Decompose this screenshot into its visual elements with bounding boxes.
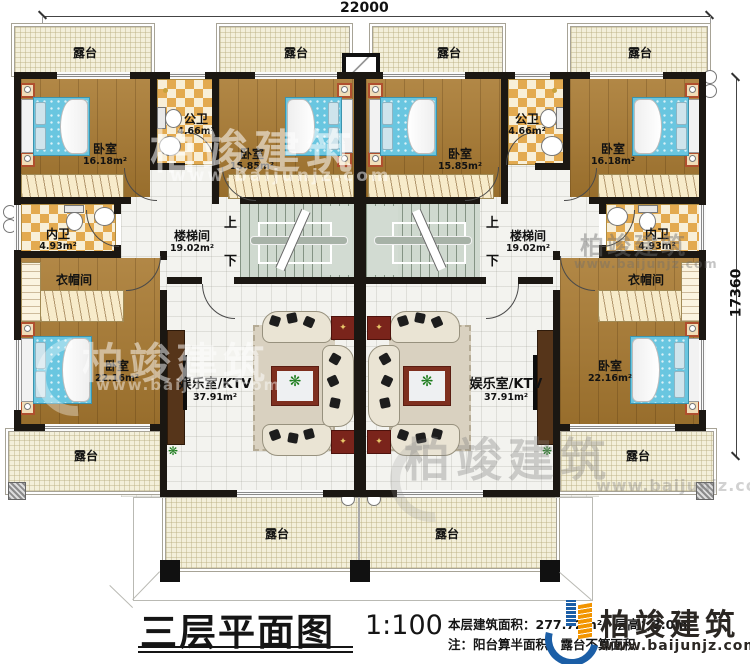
side-table: ✦ <box>367 430 391 454</box>
corner-post <box>696 482 714 500</box>
wall-lamp <box>552 88 557 93</box>
wardrobe <box>40 290 124 322</box>
wall <box>550 72 590 79</box>
wall <box>553 251 560 260</box>
star-icon: ✦ <box>375 437 383 447</box>
roof-line <box>109 585 133 608</box>
wall <box>167 277 202 284</box>
pillow <box>676 127 687 150</box>
pillow <box>674 342 685 369</box>
plant-icon: ❋ <box>542 444 552 458</box>
column <box>160 560 180 582</box>
table-glass: ❋ <box>409 371 445 401</box>
coffee-table: ❋ <box>271 366 319 406</box>
stair-up-label: 上 <box>224 212 237 231</box>
wall <box>563 79 570 170</box>
window <box>237 490 323 497</box>
wardrobe <box>598 290 682 322</box>
stair-down-label: 下 <box>486 250 499 269</box>
site-url: www.baijunjz.com <box>600 638 750 654</box>
closet <box>681 262 701 322</box>
wall <box>589 197 706 204</box>
wall <box>14 72 21 205</box>
cushion <box>379 397 391 409</box>
room-label: 卧室22.16m² <box>588 360 632 385</box>
scale-label: 1:100 <box>365 610 443 641</box>
title-underline <box>138 646 353 648</box>
pillow <box>35 102 46 125</box>
window <box>699 340 706 410</box>
room-label: 露台 <box>628 47 652 61</box>
window <box>699 205 706 250</box>
pillow <box>674 371 685 398</box>
wall <box>205 72 255 79</box>
room-label: 露台 <box>265 528 289 542</box>
floor-plan-sheet: 22000 17360 上 下 上 下 <box>0 0 750 664</box>
wardrobe <box>21 174 124 199</box>
room-label: 内卫4.93m² <box>39 228 77 253</box>
pillow <box>328 102 339 125</box>
side-table: ✦ <box>367 316 391 340</box>
room-label: 露台 <box>74 450 98 464</box>
room-label: 露台 <box>284 47 308 61</box>
nightstand <box>337 83 352 98</box>
wall-lamp <box>163 88 168 93</box>
room-label: 公卫4.66m² <box>508 113 546 138</box>
room-label: 卧室15.85m² <box>230 148 274 173</box>
wall <box>234 277 354 284</box>
dimension-label: 17360 <box>728 269 744 318</box>
roof-line <box>133 497 165 498</box>
wall <box>518 277 553 284</box>
window <box>515 72 550 79</box>
side-table: ✦ <box>331 430 355 454</box>
cushion <box>414 312 426 324</box>
room-label: 露台 <box>626 450 650 464</box>
room-label: 露台 <box>435 528 459 542</box>
wall <box>553 290 560 431</box>
roof-line <box>133 497 134 600</box>
room-label: 娱乐室/KTV37.91m² <box>470 378 543 404</box>
cushion <box>287 432 299 444</box>
wall <box>553 424 570 431</box>
wall <box>167 490 237 497</box>
wall <box>150 79 157 170</box>
room-label: 楼梯间19.02m² <box>506 230 550 255</box>
column <box>350 560 370 582</box>
cushion <box>329 397 341 409</box>
wall <box>160 251 167 260</box>
wall <box>699 250 706 340</box>
closet <box>21 262 41 322</box>
terrace-divider <box>358 497 360 567</box>
window <box>57 72 130 79</box>
cushion <box>286 312 298 324</box>
star-icon: ✦ <box>339 437 347 447</box>
wall <box>366 277 486 284</box>
roof-line <box>555 497 592 498</box>
wall <box>150 424 167 431</box>
side-table: ✦ <box>331 316 355 340</box>
blanket <box>634 99 662 154</box>
room-label: 娱乐室/KTV37.91m² <box>179 378 252 404</box>
terrace <box>165 497 557 569</box>
roof-line <box>132 571 160 600</box>
extension-line <box>710 16 711 42</box>
room-label: 楼梯间19.02m² <box>170 230 214 255</box>
nightstand <box>20 322 35 337</box>
table-glass: ❋ <box>277 371 313 401</box>
wall <box>699 72 706 205</box>
pillow <box>328 127 339 150</box>
nightstand <box>368 83 383 98</box>
room-label: 内卫4.93m² <box>638 228 676 253</box>
wall <box>14 424 45 431</box>
pillow <box>676 102 687 125</box>
wall <box>160 290 167 431</box>
wall <box>675 424 706 431</box>
nightstand <box>685 322 700 337</box>
star-icon: ✦ <box>375 323 383 333</box>
pillow <box>382 127 393 150</box>
window <box>590 72 663 79</box>
window <box>255 72 337 79</box>
window <box>383 72 465 79</box>
logo-building-blue <box>566 600 576 626</box>
room-label: 卧室16.18m² <box>591 143 635 168</box>
wall <box>14 197 131 204</box>
wall <box>553 431 560 497</box>
stair-up-label: 上 <box>486 212 499 231</box>
blanket <box>632 338 660 402</box>
corner-post <box>8 482 26 500</box>
nightstand <box>20 83 35 98</box>
room-label: 衣帽间 <box>56 274 92 288</box>
coffee-table: ❋ <box>403 366 451 406</box>
window <box>14 205 21 250</box>
blanket <box>287 99 315 154</box>
wall <box>483 490 553 497</box>
roof-line <box>592 497 593 600</box>
wall <box>501 79 508 204</box>
wall <box>160 431 167 497</box>
sink <box>541 136 563 156</box>
room-label: 露台 <box>73 47 97 61</box>
star-icon: ✦ <box>339 323 347 333</box>
wall <box>212 79 219 204</box>
window <box>45 424 150 431</box>
blanket <box>407 99 435 154</box>
pillow <box>382 102 393 125</box>
room-label: 卧室16.18m² <box>83 143 127 168</box>
room-label: 露台 <box>437 47 461 61</box>
title-underline <box>138 651 353 653</box>
roof-line <box>559 572 591 600</box>
window <box>570 424 675 431</box>
plant-icon: ❋ <box>421 372 434 390</box>
roof-line <box>133 600 593 601</box>
dimension-label: 22000 <box>340 0 389 16</box>
room-label: 卧室15.85m² <box>438 148 482 173</box>
party-wall <box>354 72 366 497</box>
wardrobe <box>598 174 701 199</box>
wall <box>130 72 170 79</box>
wall <box>323 490 354 497</box>
window <box>170 72 205 79</box>
pillow <box>35 127 46 150</box>
plant-icon: ❋ <box>168 444 178 458</box>
wall <box>14 250 21 340</box>
wall <box>465 72 515 79</box>
stair-down-label: 下 <box>224 250 237 269</box>
plant-icon: ❋ <box>289 372 302 390</box>
window <box>14 340 21 410</box>
sink <box>159 136 181 156</box>
room-label: 衣帽间 <box>628 274 664 288</box>
nightstand <box>685 83 700 98</box>
room-label: 公卫4.66m² <box>177 113 215 138</box>
column <box>540 560 560 582</box>
dimension-line <box>42 16 710 17</box>
logo-building-orange <box>578 603 592 639</box>
